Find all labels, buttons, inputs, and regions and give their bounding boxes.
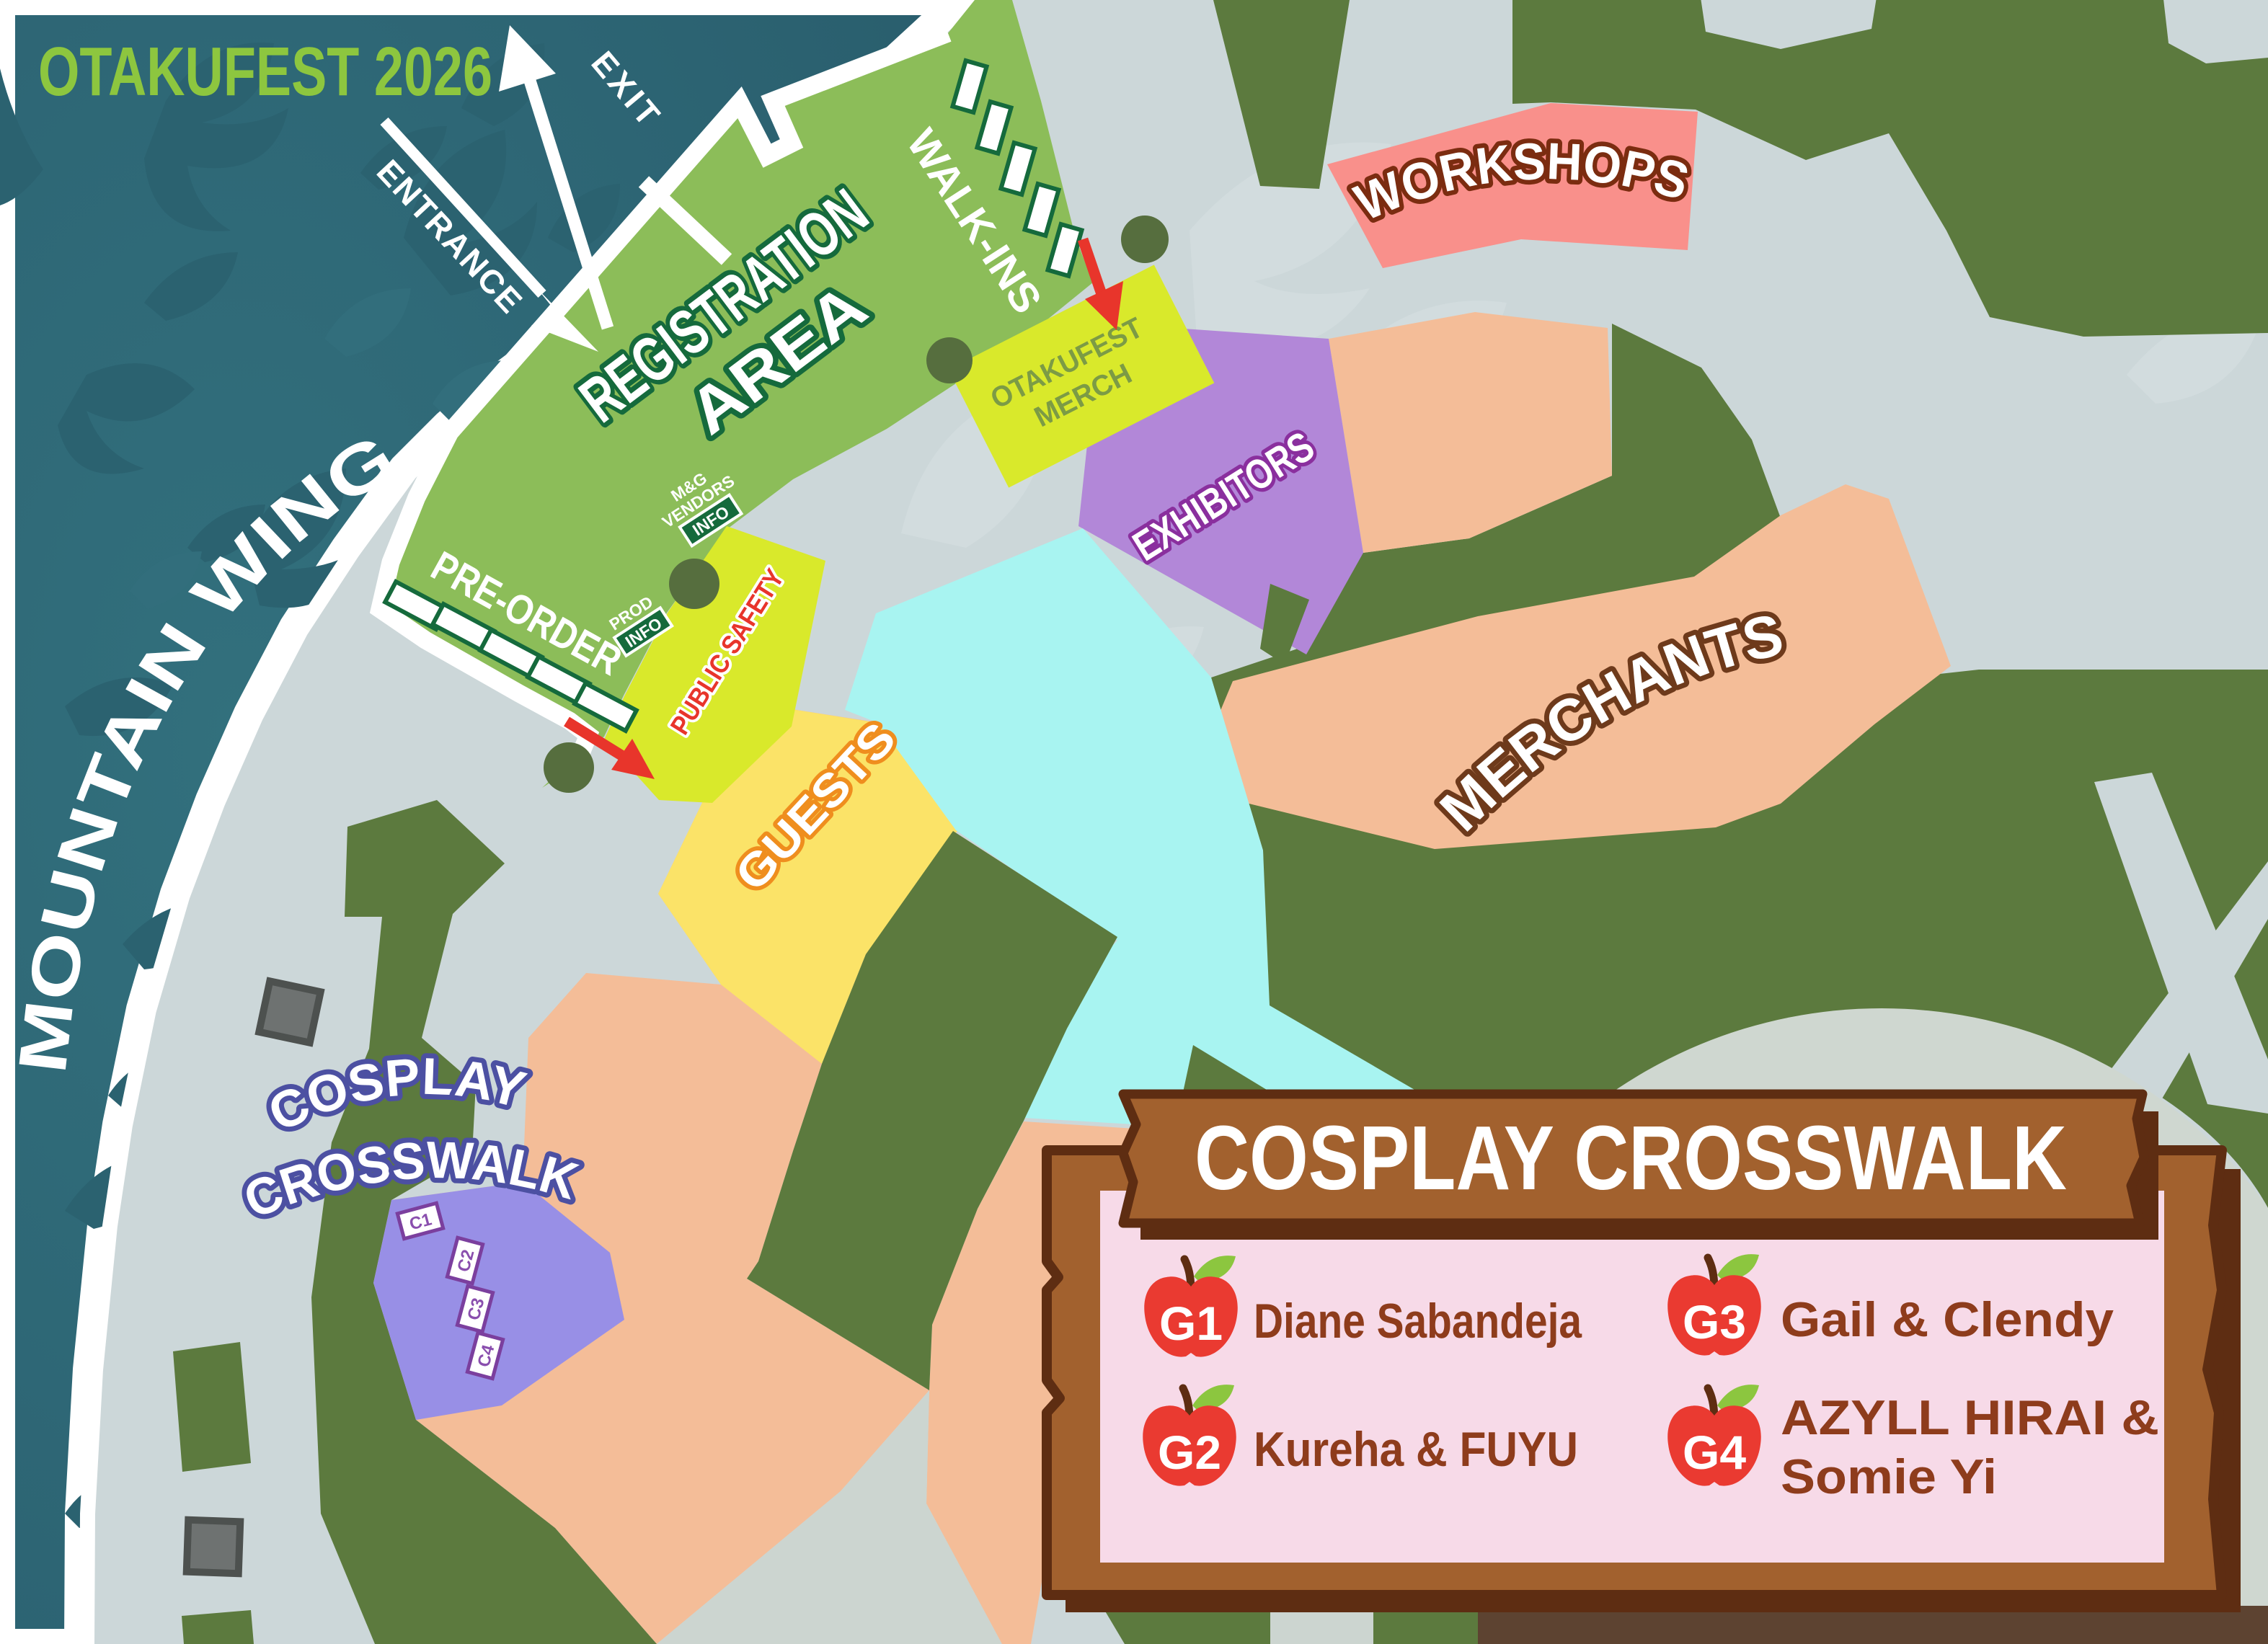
svg-text:G2: G2	[1158, 1426, 1221, 1479]
svg-text:G1: G1	[1159, 1297, 1223, 1350]
svg-text:Somie Yi: Somie Yi	[1781, 1449, 1997, 1504]
svg-text:G4: G4	[1683, 1426, 1746, 1479]
svg-text:Kureha & FUYU: Kureha & FUYU	[1254, 1422, 1578, 1477]
svg-text:G3: G3	[1683, 1295, 1746, 1348]
svg-text:OTAKUFEST 2026: OTAKUFEST 2026	[38, 33, 492, 110]
svg-text:AZYLL HIRAI &: AZYLL HIRAI &	[1781, 1390, 2159, 1445]
svg-text:COSPLAY CROSSWALK: COSPLAY CROSSWALK	[1195, 1107, 2067, 1209]
svg-text:Diane Sabandeja: Diane Sabandeja	[1254, 1294, 1582, 1348]
svg-text:Gail & Clendy: Gail & Clendy	[1781, 1292, 2114, 1347]
